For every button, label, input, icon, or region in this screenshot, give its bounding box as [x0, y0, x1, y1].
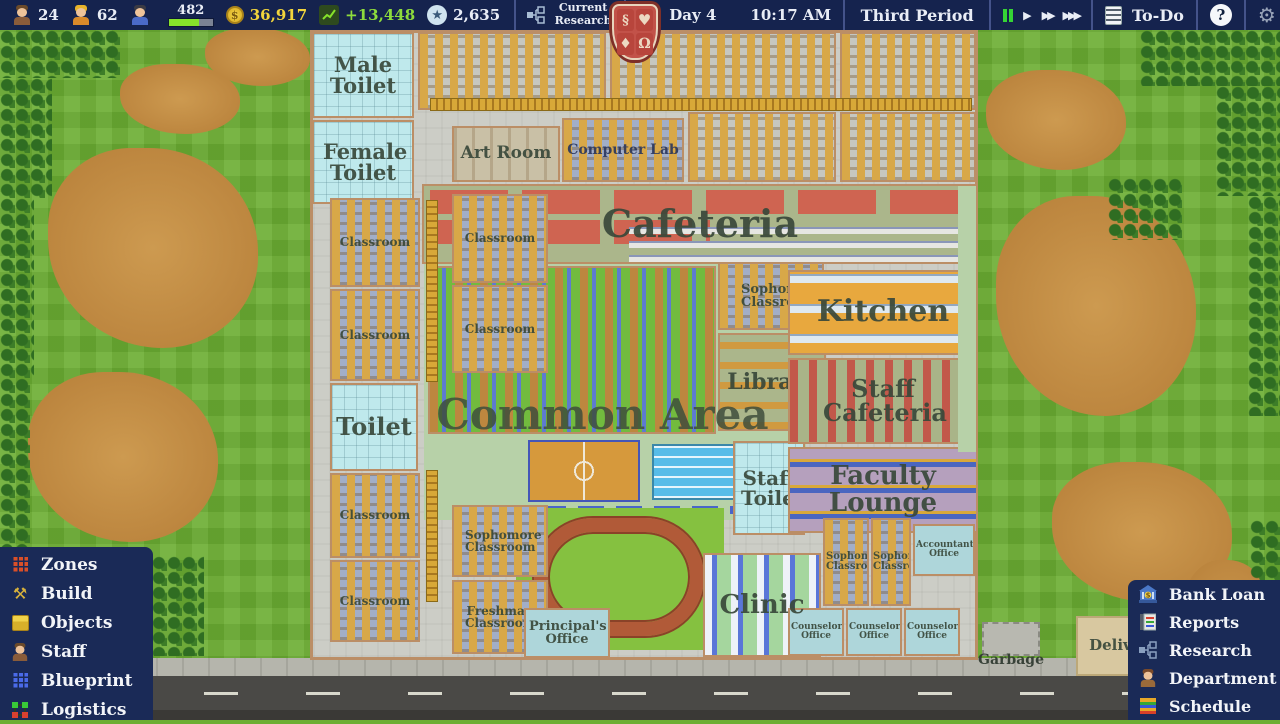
- research-nodes-icon: [1138, 640, 1158, 660]
- tree-cluster: [152, 556, 204, 656]
- menu-label: Build: [41, 584, 93, 604]
- fast-forward-button[interactable]: ▶▶: [1042, 9, 1053, 22]
- room-classroom[interactable]: Classroom: [330, 560, 420, 642]
- room-accountants-office[interactable]: Accountant's Office: [913, 524, 975, 576]
- menu-label: Blueprint: [41, 671, 133, 691]
- room-label: Male Toilet: [328, 54, 398, 97]
- basketball-court[interactable]: [528, 440, 640, 502]
- room-label: Sophomore Classroom: [826, 552, 866, 572]
- money-stat[interactable]: $ 36,917: [226, 6, 307, 24]
- room-principals-office[interactable]: Principal's Office: [524, 608, 610, 658]
- todo-button[interactable]: To-Do: [1091, 0, 1196, 30]
- student-capacity: 482: [168, 4, 214, 27]
- room-art-room[interactable]: Art Room: [452, 126, 560, 182]
- points-stat[interactable]: ★ 2,635: [427, 5, 500, 25]
- menu-item-blueprint[interactable]: Blueprint: [0, 666, 153, 695]
- room-computer-lab[interactable]: Computer Lab: [562, 118, 684, 182]
- tree-cluster: [0, 30, 120, 78]
- star-icon: ★: [427, 5, 447, 25]
- room-counselors-office[interactable]: Counselor's Office: [904, 608, 960, 656]
- menu-label: Staff: [41, 642, 86, 662]
- menu-item-schedule[interactable]: Schedule: [1128, 692, 1280, 720]
- help-button[interactable]: ?: [1196, 0, 1244, 30]
- income-chart-icon: [319, 5, 339, 25]
- room-kitchen[interactable]: Kitchen: [788, 270, 978, 355]
- blueprint-grid-icon: [10, 671, 30, 691]
- hallway-lockers: [426, 200, 438, 382]
- hallway-lockers: [430, 98, 972, 111]
- menu-item-reports[interactable]: Reports: [1128, 608, 1280, 636]
- build-menu: Zones ⚒ Build Objects Staff Blueprint Lo…: [0, 547, 153, 720]
- room-label: Classroom: [340, 509, 410, 521]
- pause-button[interactable]: [1003, 9, 1013, 22]
- tree-cluster: [1216, 86, 1280, 196]
- points-value: 2,635: [453, 6, 500, 24]
- menu-item-objects[interactable]: Objects: [0, 608, 153, 637]
- period-segment: Third Period: [843, 0, 989, 30]
- room-sophomore-classroom[interactable]: Sophomore Classroom: [871, 518, 911, 606]
- room-sophomore-classroom[interactable]: Sophomore Classroom: [823, 518, 869, 606]
- room-label: Computer Lab: [567, 143, 679, 157]
- menu-item-department[interactable]: Department: [1128, 664, 1280, 692]
- income-value: +13,448: [345, 6, 415, 24]
- room-label: Female Toilet: [323, 141, 403, 184]
- menu-label: Bank Loan: [1169, 585, 1265, 604]
- room-counselors-office[interactable]: Counselor's Office: [846, 608, 902, 656]
- teacher-icon: [12, 5, 32, 25]
- fastest-forward-button[interactable]: ▶▶▶: [1063, 9, 1079, 22]
- reports-notebook-icon: [1138, 612, 1158, 632]
- dirt-patch: [986, 70, 1126, 170]
- room-label: Counselor's Office: [791, 623, 841, 641]
- play-button[interactable]: ▶: [1023, 9, 1031, 22]
- management-menu: $ Bank Loan Reports Research: [1128, 580, 1280, 720]
- zones-grid-icon: [10, 555, 30, 575]
- tree-cluster: [1140, 30, 1280, 86]
- student-count[interactable]: 482: [130, 4, 214, 27]
- period-label: Third Period: [861, 6, 974, 25]
- room-classroom[interactable]: Classroom: [452, 194, 548, 283]
- help-icon: ?: [1210, 4, 1232, 26]
- room-male-toilet[interactable]: Male Toilet: [312, 32, 414, 118]
- cafeteria-dining-tables: [629, 222, 971, 262]
- tree-cluster: [0, 198, 34, 378]
- room-label: Classroom: [340, 595, 410, 607]
- logistics-nodes-icon: [10, 700, 30, 720]
- room-sophomore-classroom[interactable]: Sophomore Classroom: [452, 505, 548, 577]
- svg-text:$: $: [1146, 592, 1151, 600]
- crest-scroll-glyph: §: [617, 9, 634, 31]
- dirt-patch: [48, 148, 258, 348]
- settings-button[interactable]: ⚙: [1244, 0, 1280, 30]
- menu-label: Zones: [41, 555, 98, 575]
- crest-heart-glyph: ♥: [636, 9, 653, 31]
- hammer-icon: ⚒: [10, 584, 30, 604]
- room-label: Classroom: [340, 236, 410, 248]
- tree-cluster: [1108, 178, 1182, 240]
- teacher-count[interactable]: 24: [12, 5, 59, 25]
- worker-count-value: 62: [97, 6, 118, 24]
- room-classroom[interactable]: Classroom: [452, 285, 548, 373]
- menu-label: Logistics: [41, 700, 126, 720]
- schedule-bars-icon: [1138, 696, 1158, 716]
- teacher-count-value: 24: [38, 6, 59, 24]
- coin-icon: $: [226, 6, 244, 24]
- school-crest[interactable]: § ♥ ♦ Ω: [606, 0, 664, 66]
- tree-cluster: [1248, 196, 1280, 416]
- crest-diamond-glyph: ♦: [617, 33, 634, 55]
- room-label: Art Room: [461, 145, 552, 162]
- todo-list-icon: [1105, 6, 1122, 25]
- road-shoulder: [0, 710, 1280, 720]
- menu-label: Research: [1169, 641, 1252, 660]
- east-corridor: [958, 186, 976, 452]
- room-label: Classroom: [465, 232, 535, 244]
- room-label: Toilet: [336, 415, 412, 439]
- room-label: Classroom: [465, 323, 535, 335]
- tree-cluster: [0, 78, 52, 198]
- game-map[interactable]: Common Area Male Toilet Female Toilet To…: [0, 0, 1280, 720]
- speed-controls: ▶ ▶▶ ▶▶▶: [989, 0, 1091, 30]
- road: [0, 676, 1280, 710]
- department-person-icon: [1138, 668, 1158, 688]
- student-icon: [130, 5, 150, 25]
- current-research-label: Current Research: [552, 2, 614, 27]
- room-staff-cafeteria[interactable]: Staff Cafeteria: [788, 358, 978, 444]
- menu-item-staff[interactable]: Staff: [0, 637, 153, 666]
- worker-icon: [71, 5, 91, 25]
- dirt-patch: [28, 372, 218, 542]
- room-label: Classroom: [340, 329, 410, 341]
- room-toilet[interactable]: Toilet: [330, 383, 418, 471]
- room-classroom[interactable]: [840, 112, 976, 182]
- menu-label: Reports: [1169, 613, 1239, 632]
- room-label: Principal's Office: [529, 620, 605, 647]
- room-label: Faculty Lounge: [818, 463, 948, 516]
- day-label: Day 4: [669, 6, 716, 24]
- room-label: Accountant's Office: [916, 541, 972, 559]
- crest-omega-glyph: Ω: [636, 33, 653, 55]
- room-label: Staff Cafeteria: [823, 377, 943, 426]
- hallway-lockers: [426, 470, 438, 602]
- student-count-value: 482: [177, 4, 204, 17]
- staff-person-icon: [10, 642, 30, 662]
- todo-label: To-Do: [1132, 6, 1184, 25]
- zone-garbage[interactable]: [982, 622, 1040, 656]
- room-classroom[interactable]: [688, 112, 836, 182]
- road-centerline: [0, 692, 1280, 695]
- top-bar-right: Y7 Day 4 10:17 AM Third Period ▶ ▶▶ ▶▶▶ …: [626, 0, 1280, 30]
- crest-shield: § ♥ ♦ Ω: [609, 1, 661, 63]
- room-label: Counselor's Office: [849, 623, 899, 641]
- income-stat[interactable]: +13,448: [319, 5, 415, 25]
- menu-label: Objects: [41, 613, 112, 633]
- time-label: 10:17 AM: [750, 6, 831, 24]
- tree-cluster: [0, 378, 30, 558]
- menu-item-bank-loan[interactable]: $ Bank Loan: [1128, 580, 1280, 608]
- bank-icon: $: [1138, 584, 1158, 604]
- room-classroom[interactable]: Classroom: [330, 198, 420, 287]
- room-counselors-office[interactable]: Counselor's Office: [788, 608, 844, 656]
- room-label: Sophomore Classroom: [873, 552, 909, 572]
- object-box-icon: [10, 613, 30, 633]
- student-capacity-bar: [168, 18, 214, 27]
- room-classroom[interactable]: Classroom: [330, 473, 420, 558]
- room-label: Sophomore Classroom: [465, 529, 535, 553]
- menu-item-build[interactable]: ⚒ Build: [0, 579, 153, 608]
- worker-count[interactable]: 62: [71, 5, 118, 25]
- room-label: Kitchen: [817, 297, 949, 328]
- room-female-toilet[interactable]: Female Toilet: [312, 120, 414, 204]
- research-icon: [526, 5, 546, 25]
- menu-item-zones[interactable]: Zones: [0, 550, 153, 579]
- menu-label: Schedule: [1169, 697, 1251, 716]
- money-value: 36,917: [250, 6, 307, 24]
- room-classroom[interactable]: Classroom: [330, 289, 420, 381]
- room-label: Counselor's Office: [907, 623, 957, 641]
- gear-icon: ⚙: [1258, 5, 1276, 25]
- menu-label: Department: [1169, 669, 1277, 688]
- menu-item-research[interactable]: Research: [1128, 636, 1280, 664]
